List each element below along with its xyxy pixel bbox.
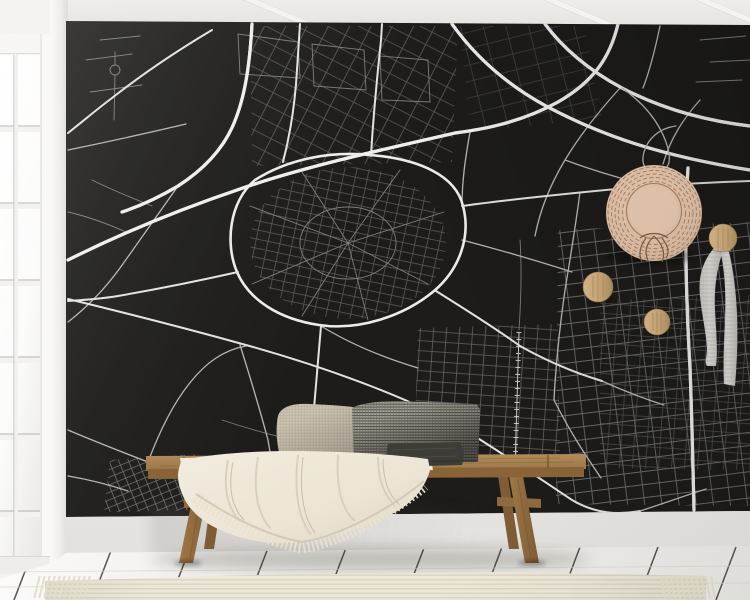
- wooden-peg: [709, 224, 737, 252]
- wooden-peg: [583, 272, 614, 304]
- furniture-layer: [0, 0, 750, 600]
- hanging-scarf: [700, 248, 738, 386]
- straw-hat: [606, 165, 702, 265]
- room-scene: Interior photo mockup: black city-map wa…: [0, 0, 750, 600]
- wooden-peg: [644, 309, 671, 337]
